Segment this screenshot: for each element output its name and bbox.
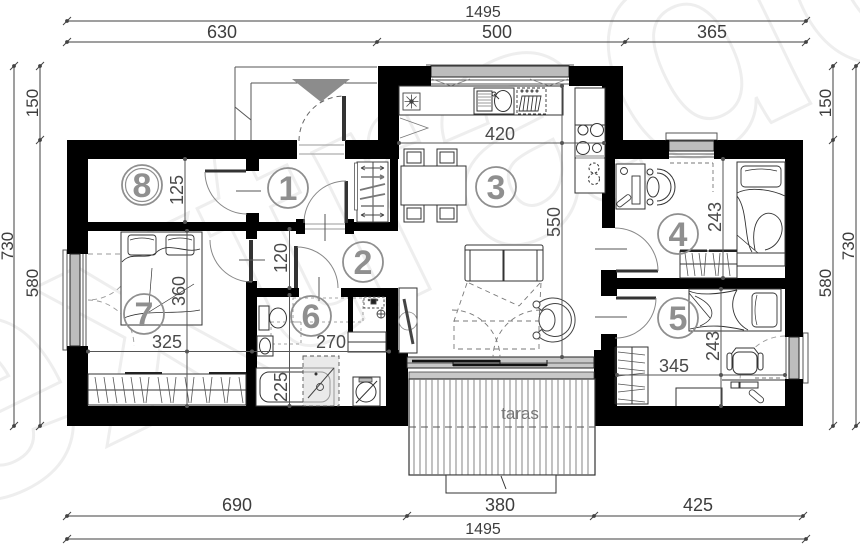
svg-text:730: 730 <box>839 232 858 260</box>
svg-text:4: 4 <box>669 216 688 254</box>
svg-text:2: 2 <box>354 244 373 282</box>
svg-text:7: 7 <box>135 296 154 334</box>
svg-text:500: 500 <box>482 22 512 42</box>
svg-text:425: 425 <box>683 495 713 515</box>
svg-text:120: 120 <box>271 243 291 273</box>
svg-text:1495: 1495 <box>465 521 501 538</box>
svg-text:360: 360 <box>169 276 189 306</box>
svg-text:345: 345 <box>659 356 689 376</box>
svg-text:5: 5 <box>669 300 688 338</box>
svg-text:380: 380 <box>485 495 515 515</box>
svg-text:580: 580 <box>23 269 42 297</box>
svg-text:365: 365 <box>697 22 727 42</box>
svg-text:243: 243 <box>703 331 723 361</box>
svg-text:3: 3 <box>487 169 506 207</box>
svg-text:1495: 1495 <box>465 4 501 21</box>
svg-text:225: 225 <box>271 372 291 402</box>
svg-text:1: 1 <box>279 170 298 208</box>
svg-text:150: 150 <box>816 89 835 117</box>
svg-text:243: 243 <box>705 202 725 232</box>
svg-text:580: 580 <box>816 269 835 297</box>
svg-text:630: 630 <box>207 22 237 42</box>
svg-text:6: 6 <box>302 298 321 336</box>
svg-text:taras: taras <box>501 404 539 423</box>
svg-text:690: 690 <box>222 495 252 515</box>
svg-text:270: 270 <box>316 332 346 352</box>
svg-text:8: 8 <box>133 167 152 205</box>
svg-text:730: 730 <box>0 232 17 260</box>
svg-text:150: 150 <box>23 89 42 117</box>
svg-text:325: 325 <box>152 332 182 352</box>
svg-text:420: 420 <box>485 124 515 144</box>
svg-text:550: 550 <box>544 207 564 237</box>
svg-text:125: 125 <box>167 175 187 205</box>
